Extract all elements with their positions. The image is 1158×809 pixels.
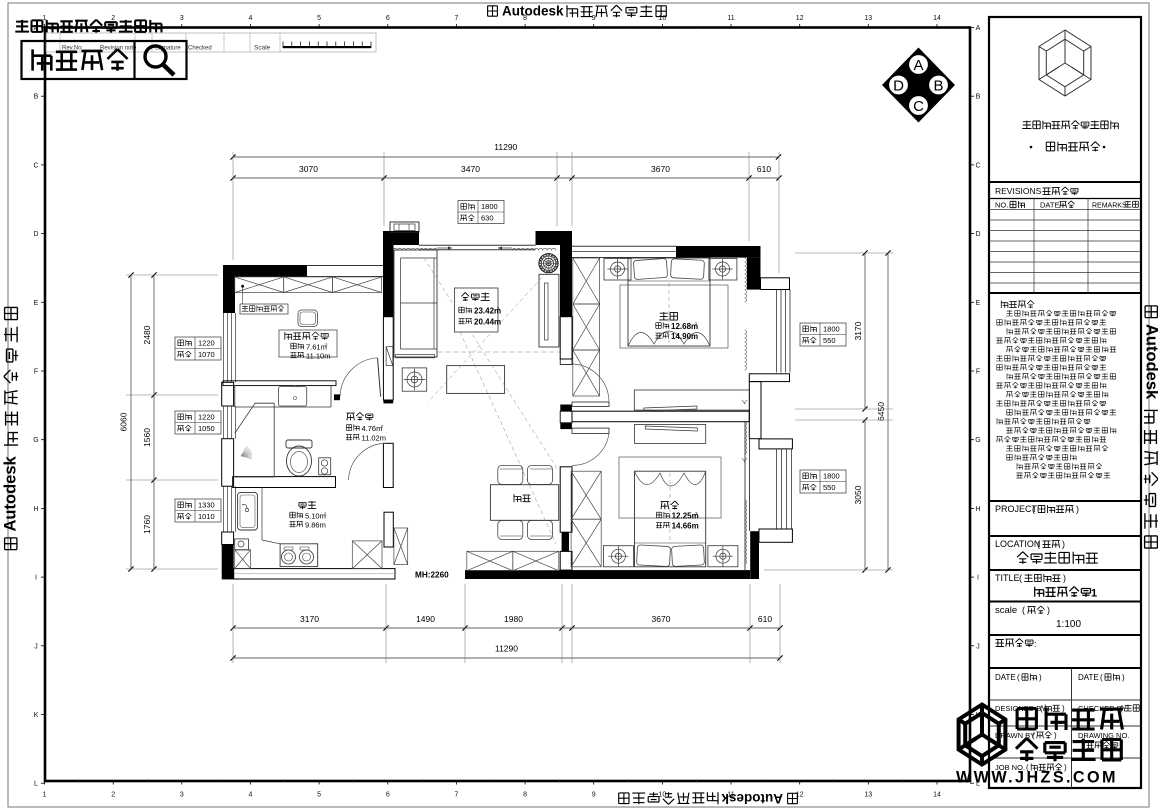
- svg-text:D: D: [893, 78, 904, 95]
- svg-text:A: A: [976, 25, 981, 32]
- svg-text:D: D: [975, 231, 980, 238]
- svg-text:(: (: [1019, 573, 1022, 583]
- svg-text:): ): [1076, 504, 1079, 514]
- svg-text:1800: 1800: [823, 472, 840, 481]
- svg-text:5: 5: [317, 15, 321, 22]
- svg-text:2480: 2480: [142, 325, 152, 344]
- svg-text:): ): [1062, 704, 1065, 713]
- svg-text:3050: 3050: [853, 485, 863, 504]
- svg-text:20.44m: 20.44m: [474, 318, 501, 327]
- svg-text:550: 550: [823, 336, 836, 345]
- svg-text:J: J: [976, 643, 980, 650]
- svg-text:(: (: [1037, 539, 1040, 549]
- svg-text:1: 1: [43, 792, 47, 799]
- svg-text:E: E: [976, 300, 981, 307]
- svg-text:3470: 3470: [461, 164, 480, 174]
- svg-text:B: B: [34, 94, 39, 101]
- svg-text:1220: 1220: [198, 339, 215, 348]
- svg-text:F: F: [34, 369, 38, 376]
- svg-text:J: J: [34, 643, 38, 650]
- svg-text:I: I: [977, 575, 979, 582]
- svg-text:G: G: [975, 437, 980, 444]
- svg-text:550: 550: [823, 483, 836, 492]
- svg-text:13: 13: [864, 15, 872, 22]
- svg-text:Autodesk: Autodesk: [1143, 324, 1158, 400]
- svg-text:H: H: [33, 506, 38, 513]
- svg-text:14.90m: 14.90m: [671, 332, 698, 341]
- svg-text:14: 14: [933, 792, 941, 799]
- svg-text:): ): [1054, 731, 1057, 740]
- svg-text:6: 6: [386, 792, 390, 799]
- svg-text:): ): [1047, 605, 1050, 615]
- svg-text:Autodesk: Autodesk: [2, 456, 20, 532]
- svg-text:2: 2: [111, 15, 115, 22]
- svg-text:DATE: DATE: [1078, 673, 1099, 682]
- svg-text:B: B: [933, 78, 943, 95]
- svg-text:7: 7: [454, 792, 458, 799]
- svg-text:scale: scale: [995, 605, 1017, 616]
- svg-text:(: (: [1032, 731, 1035, 740]
- svg-text:1800: 1800: [823, 325, 840, 334]
- svg-text:6060: 6060: [119, 412, 129, 431]
- svg-text:C: C: [913, 98, 924, 115]
- svg-text:5.10m: 5.10m: [305, 512, 326, 521]
- svg-text:I: I: [35, 575, 37, 582]
- svg-text:11290: 11290: [494, 142, 517, 152]
- svg-text:1:100: 1:100: [1056, 619, 1081, 630]
- svg-text:B: B: [976, 94, 981, 101]
- svg-text:): ): [1039, 673, 1042, 682]
- svg-text:L: L: [34, 781, 38, 788]
- svg-text:7: 7: [454, 15, 458, 22]
- svg-text:TITLE: TITLE: [995, 573, 1020, 583]
- svg-text:(: (: [1017, 673, 1020, 682]
- svg-text:H: H: [975, 506, 980, 513]
- svg-text:1800: 1800: [481, 202, 498, 211]
- svg-text:630: 630: [481, 214, 494, 223]
- svg-text:610: 610: [758, 614, 772, 624]
- svg-text:): ): [1122, 673, 1125, 682]
- svg-text:LOCATION: LOCATION: [995, 539, 1040, 549]
- svg-text:8: 8: [523, 792, 527, 799]
- svg-text:(: (: [1040, 704, 1043, 713]
- svg-text:3170: 3170: [853, 321, 863, 340]
- svg-text:1560: 1560: [142, 428, 152, 447]
- svg-text:3670: 3670: [651, 164, 670, 174]
- svg-text:1490: 1490: [416, 614, 435, 624]
- svg-text:MH:2260: MH:2260: [415, 571, 449, 580]
- svg-text:D: D: [33, 231, 38, 238]
- svg-text:C: C: [33, 162, 38, 169]
- svg-text:1330: 1330: [198, 501, 215, 510]
- svg-text:G: G: [33, 437, 38, 444]
- svg-text:C: C: [975, 162, 980, 169]
- svg-text:DATE: DATE: [995, 673, 1016, 682]
- svg-text::: :: [1034, 639, 1037, 649]
- svg-text:(: (: [1032, 504, 1035, 514]
- svg-text:13: 13: [864, 792, 872, 799]
- svg-text:11290: 11290: [495, 644, 518, 654]
- svg-text:610: 610: [757, 164, 771, 174]
- svg-text:Autodesk: Autodesk: [502, 4, 564, 19]
- svg-text:14.66m: 14.66m: [672, 522, 699, 531]
- svg-text:12: 12: [796, 15, 804, 22]
- svg-text:6450: 6450: [876, 402, 886, 421]
- svg-text:1: 1: [1091, 588, 1097, 600]
- svg-text:REMARKS: REMARKS: [1092, 203, 1127, 210]
- svg-text:Checked: Checked: [188, 46, 212, 52]
- svg-text:14: 14: [933, 15, 941, 22]
- svg-text:7.61m: 7.61m: [306, 343, 327, 352]
- svg-text:4.76m: 4.76m: [362, 424, 383, 433]
- svg-text:(: (: [1022, 605, 1025, 615]
- svg-text:11: 11: [727, 15, 734, 22]
- svg-text:1980: 1980: [504, 614, 523, 624]
- svg-text:K: K: [34, 712, 39, 719]
- svg-text:WWW.JHZS.COM: WWW.JHZS.COM: [956, 769, 1118, 787]
- svg-text:4: 4: [249, 15, 253, 22]
- svg-text:1010: 1010: [198, 512, 215, 521]
- svg-text:): ): [1062, 539, 1065, 549]
- svg-text:3: 3: [180, 792, 184, 799]
- svg-text:5: 5: [317, 792, 321, 799]
- svg-text:11.02m: 11.02m: [362, 434, 386, 443]
- svg-text:F: F: [976, 369, 980, 376]
- svg-text:9: 9: [592, 792, 596, 799]
- svg-text:): ): [1063, 573, 1066, 583]
- svg-text:(: (: [1100, 673, 1103, 682]
- svg-text:1760: 1760: [142, 515, 152, 534]
- svg-text:A: A: [913, 57, 923, 74]
- svg-text:2: 2: [111, 792, 115, 799]
- svg-text:3070: 3070: [299, 164, 318, 174]
- svg-text:11.10m: 11.10m: [306, 352, 330, 361]
- svg-text:1070: 1070: [198, 350, 215, 359]
- svg-text:Scale: Scale: [254, 45, 271, 52]
- svg-text:6: 6: [386, 15, 390, 22]
- svg-text:NO.: NO.: [995, 201, 1008, 210]
- svg-text:Autodesk: Autodesk: [721, 791, 783, 806]
- svg-text:3: 3: [180, 15, 184, 22]
- svg-text:E: E: [34, 300, 39, 307]
- svg-text:1050: 1050: [198, 424, 215, 433]
- svg-text:3170: 3170: [300, 614, 319, 624]
- svg-text:1220: 1220: [198, 413, 215, 422]
- svg-text:3670: 3670: [652, 614, 671, 624]
- svg-text:4: 4: [249, 792, 253, 799]
- svg-text:9.86m: 9.86m: [305, 521, 326, 530]
- svg-text:DATE: DATE: [1040, 201, 1059, 210]
- svg-text:REVISIONS: REVISIONS: [995, 186, 1042, 196]
